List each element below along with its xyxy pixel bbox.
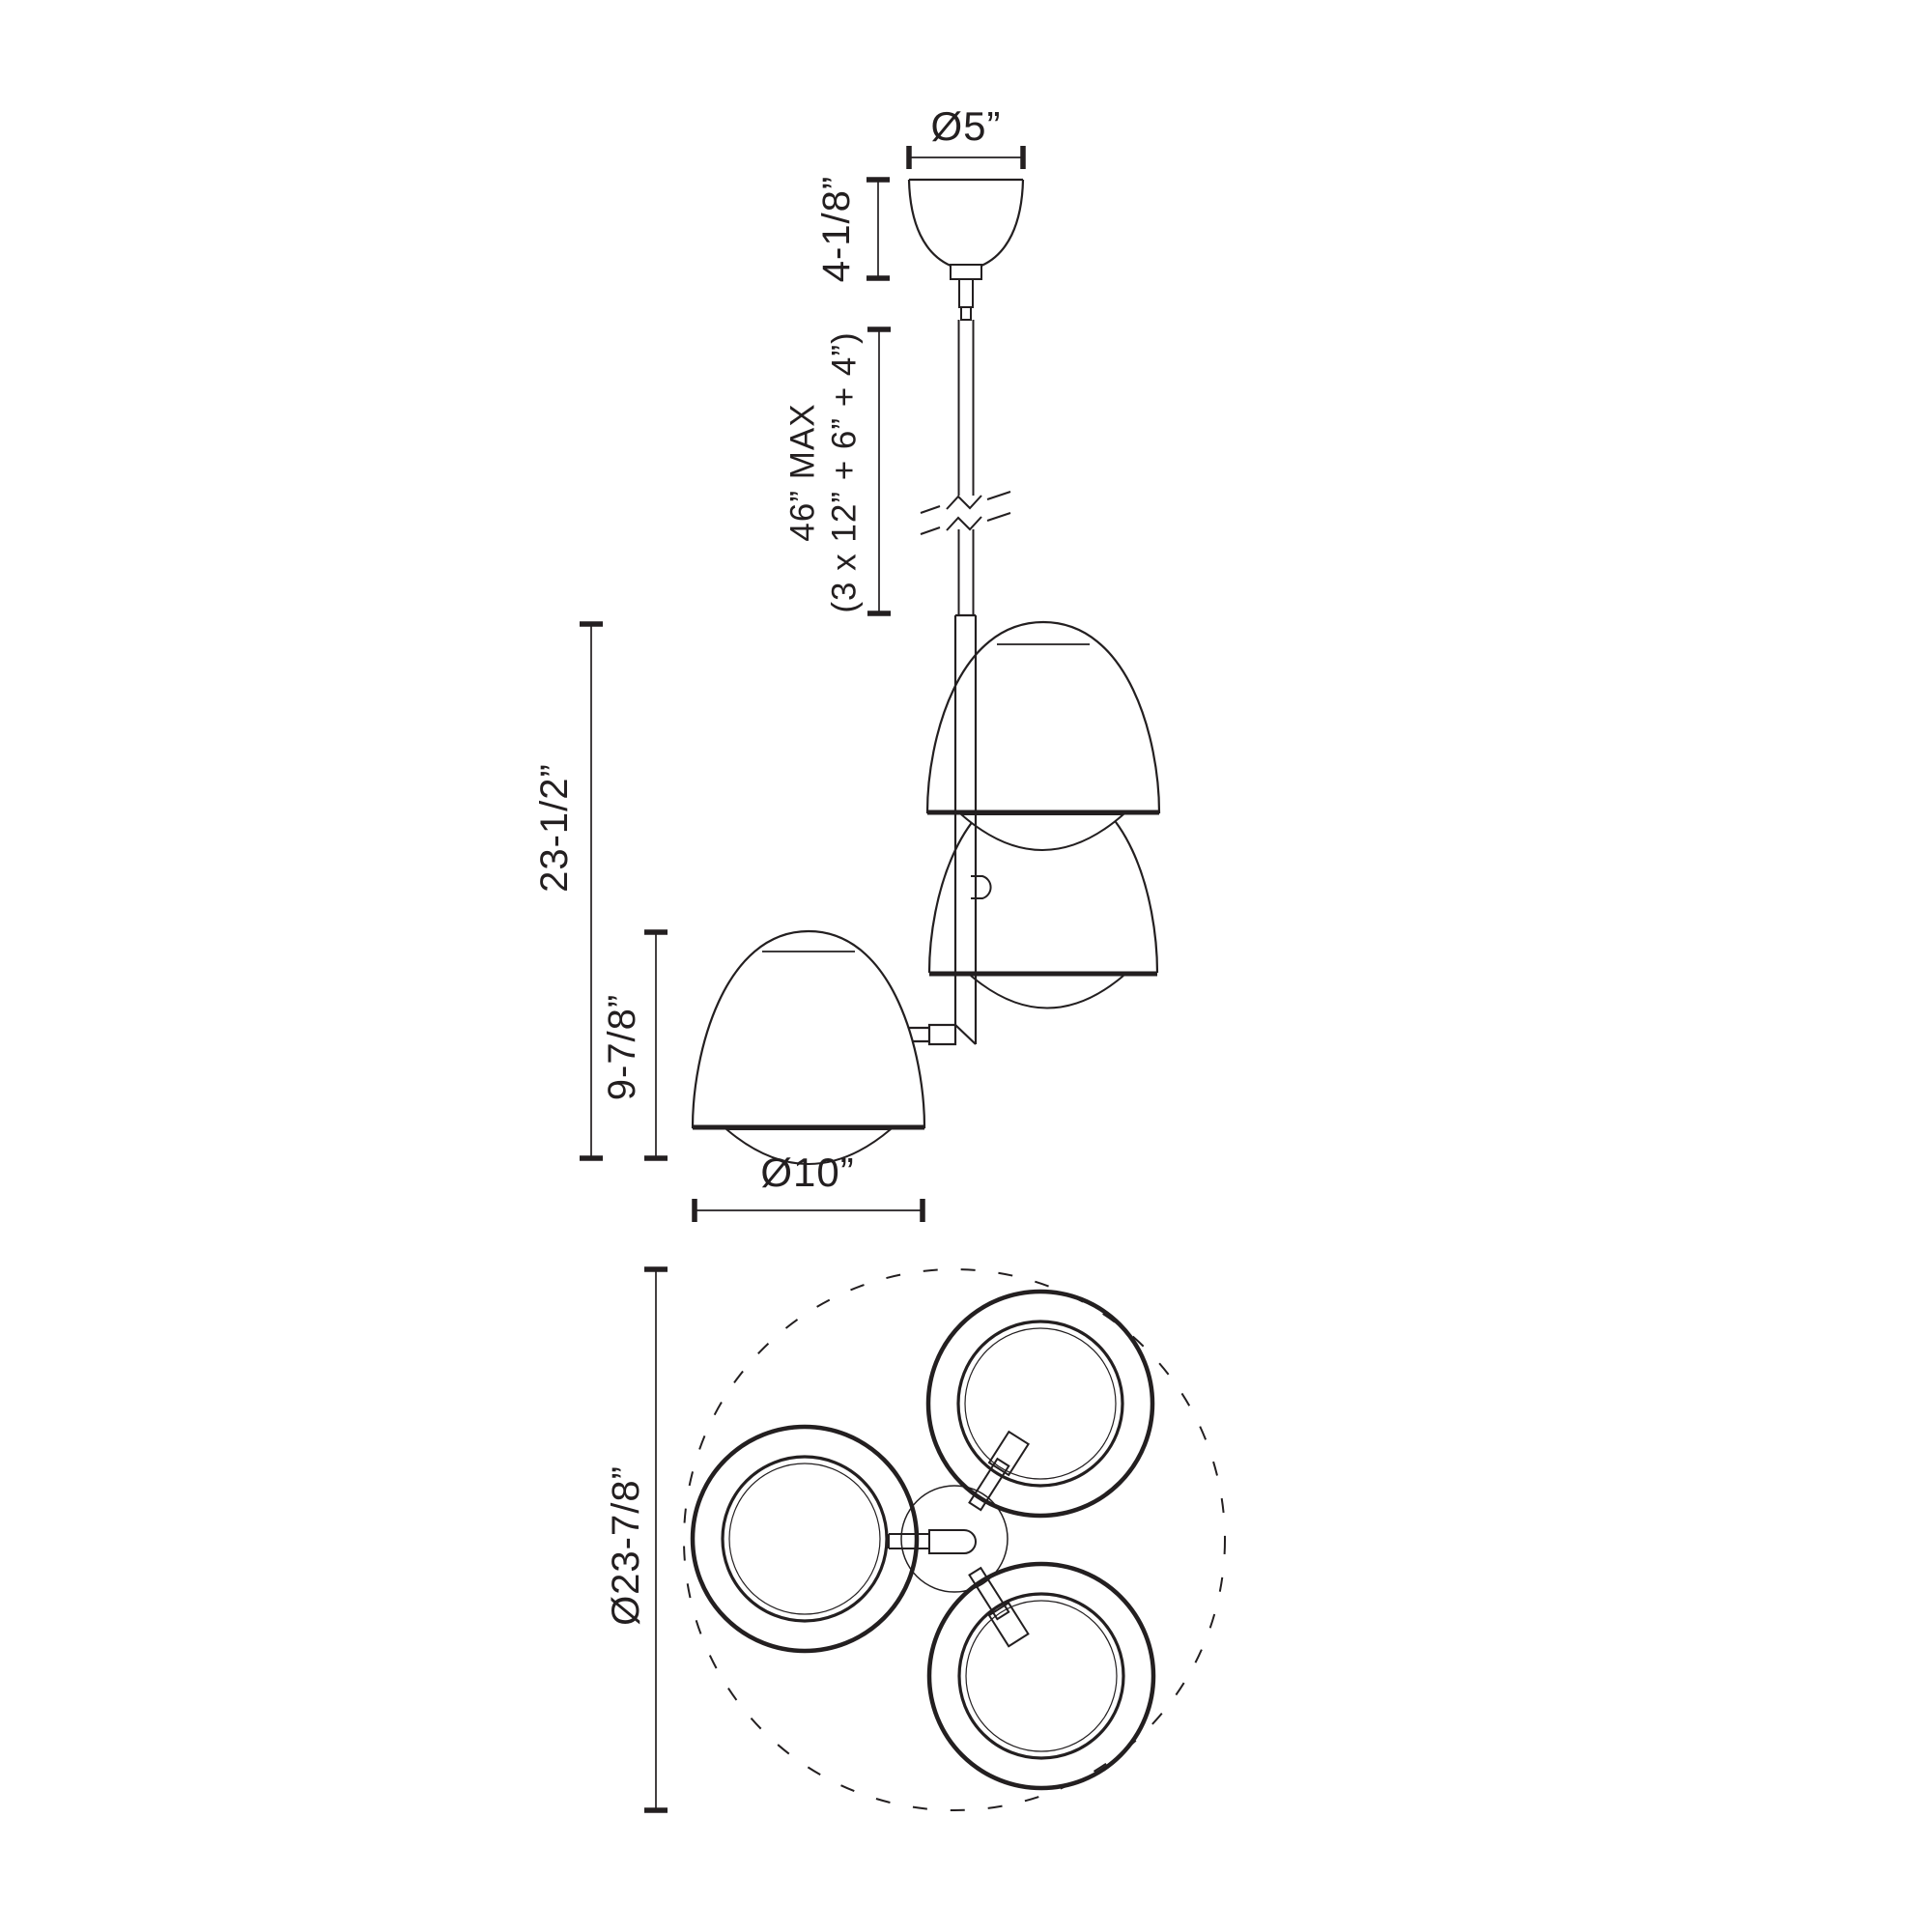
technical-drawing-page: Ø5” 4-1/8” 46” MAX (3 x 12” + 6” + 4”) 2… — [0, 0, 1932, 1932]
shade-height-label: 9-7/8” — [601, 994, 643, 1101]
shade-top-outline — [927, 622, 1159, 850]
plan-spread-dashed-circle — [684, 1269, 1225, 1810]
spread-diameter-label: Ø23-7/8” — [605, 1465, 647, 1626]
technical-drawing-svg — [0, 0, 1932, 1932]
dim-stem-length — [867, 329, 891, 613]
plan-shade-ring-bottom-right — [929, 1564, 1153, 1788]
stem-max-length-line2: (3 x 12” + 6” + 4”) — [824, 331, 866, 612]
stem-max-length-line1: 46” MAX — [782, 331, 824, 612]
canopy-outline — [909, 180, 1023, 320]
dim-spread-diameter — [644, 1269, 668, 1810]
socket-knob — [971, 876, 991, 898]
plan-shade-ring-left — [693, 1427, 917, 1651]
dim-shade-height — [644, 932, 668, 1158]
stem-max-length-label: 46” MAX (3 x 12” + 6” + 4”) — [782, 331, 865, 612]
fixture-height-label: 23-1/2” — [533, 763, 576, 893]
dim-fixture-height — [580, 624, 603, 1158]
dim-shade-diameter — [695, 1199, 923, 1222]
stem-rod — [959, 320, 974, 615]
canopy-height-label: 4-1/8” — [815, 176, 858, 283]
dim-canopy-height — [867, 180, 890, 278]
shade-diameter-label: Ø10” — [760, 1151, 854, 1195]
rod-break-symbol — [921, 492, 1010, 534]
canopy-diameter-label: Ø5” — [930, 104, 1001, 149]
shade-left-outline — [693, 931, 924, 1164]
dim-canopy-diameter — [909, 146, 1023, 169]
plan-shade-ring-top-right — [928, 1292, 1152, 1516]
